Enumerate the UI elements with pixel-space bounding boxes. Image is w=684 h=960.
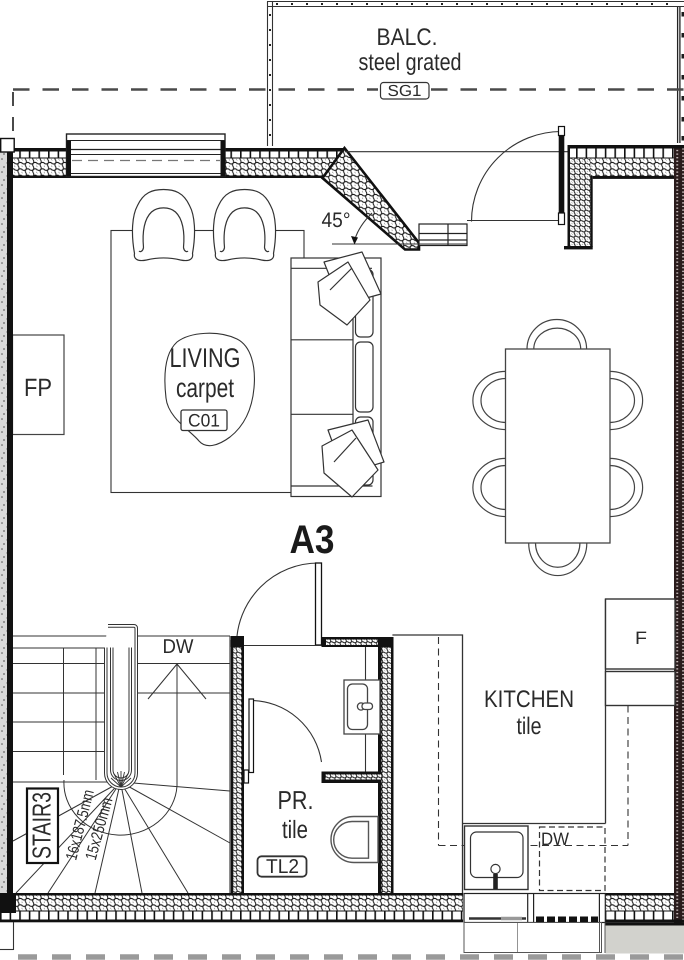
svg-text:PR.: PR. <box>278 785 314 815</box>
svg-text:steel grated: steel grated <box>359 49 462 76</box>
svg-text:BALC.: BALC. <box>377 24 438 51</box>
svg-text:SG1: SG1 <box>388 83 422 100</box>
svg-text:DW: DW <box>541 829 569 849</box>
svg-text:tile: tile <box>282 816 308 844</box>
svg-text:LIVING: LIVING <box>170 343 241 373</box>
svg-text:F: F <box>635 628 647 648</box>
svg-text:STAIR3: STAIR3 <box>27 792 57 859</box>
svg-text:tile: tile <box>517 713 542 740</box>
svg-text:DW: DW <box>163 636 194 658</box>
svg-text:KITCHEN: KITCHEN <box>484 686 574 713</box>
svg-text:TL2: TL2 <box>266 856 299 878</box>
svg-text:45°: 45° <box>322 209 351 232</box>
svg-text:A3: A3 <box>290 518 335 562</box>
svg-text:carpet: carpet <box>176 373 234 403</box>
svg-text:FP: FP <box>24 374 52 402</box>
svg-text:C01: C01 <box>188 411 220 431</box>
